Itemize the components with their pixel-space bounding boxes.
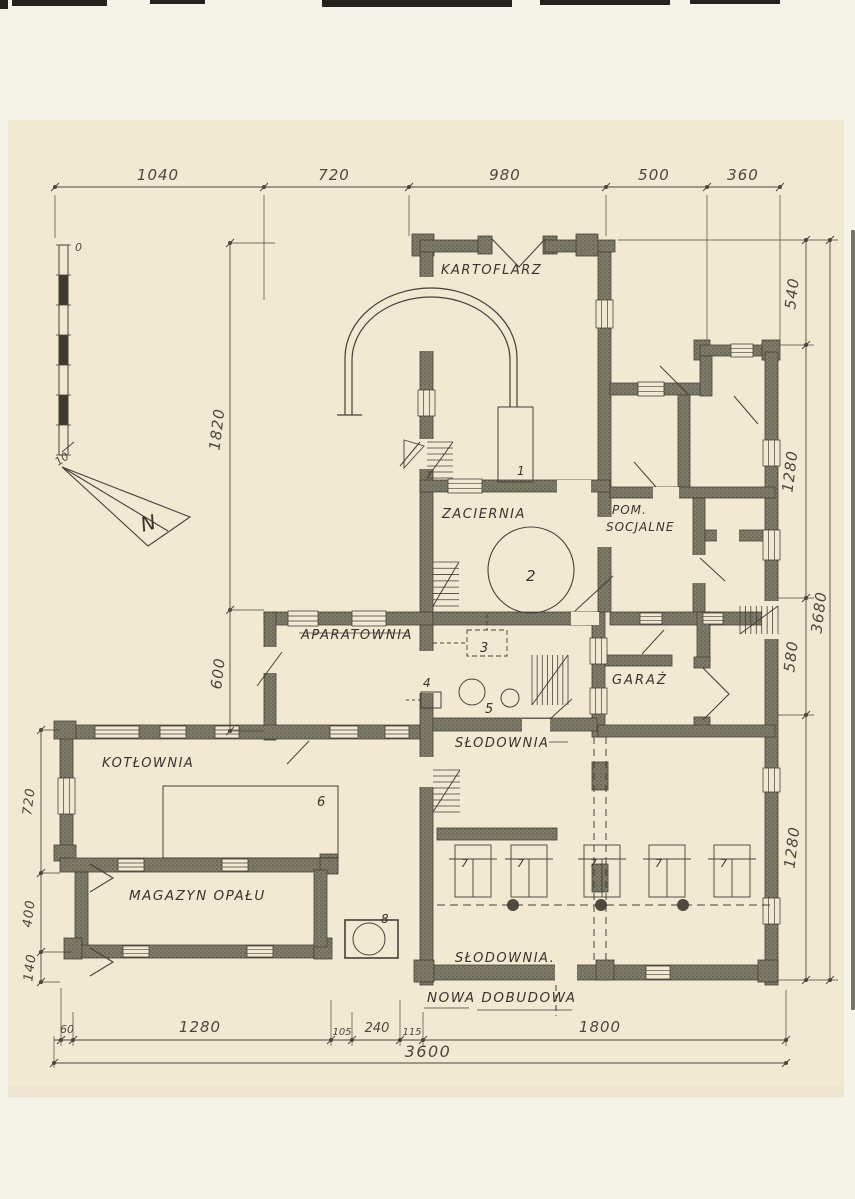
label-rooms-garaz: GARAŻ [612,672,668,688]
label-items-rack: 7 [655,857,662,870]
label-dims-top-2: 980 [489,166,521,184]
label-items-i1: 1 [517,464,525,478]
label-dims-bottom-2: 105 [332,1027,351,1038]
label-dims-right-2: 580 [780,640,802,674]
label-items-i4: 4 [423,676,431,690]
label-dims-bottom-0: 60 [60,1023,74,1036]
scanned-floor-plan: KARTOFLARZZACIERNIAPOM.SOCJALNEAPARATOWN… [0,0,855,1199]
floorplan-drawing: KARTOFLARZZACIERNIAPOM.SOCJALNEAPARATOWN… [0,0,855,1199]
label-items-i8: 8 [381,912,389,926]
label-dims-top-1: 720 [318,166,350,184]
label-items-i2: 2 [526,567,536,585]
label-scalebar-zero: 0 [75,241,82,254]
label-rooms-pom1: POM. [612,503,647,517]
label-dims-bottom-5: 1800 [579,1018,621,1036]
label-rooms-zaciernia: ZACIERNIA [441,507,526,522]
label-items-rack: 7 [517,857,524,870]
label-dims-right-0: 540 [781,277,803,311]
label-rooms-kotlownia: KOTŁOWNIA [102,756,194,771]
label-rooms-slodownia: SŁODOWNIA [455,736,549,751]
label-dims-bottom_total: 3600 [405,1042,452,1061]
label-rooms-aparatownia: APARATOWNIA [300,628,413,643]
label-dims-bottom-1: 1280 [179,1018,221,1036]
label-dims-bottom-4: 115 [402,1027,421,1038]
label-dims-left-1: 600 [207,657,229,691]
label-dims-top-3: 500 [638,166,670,184]
label-rooms-slodownia2: SŁODOWNIA. [455,951,555,966]
label-items-i3: 3 [480,641,488,656]
label-items-i5: 5 [485,702,493,717]
label-items-i6: 6 [317,795,325,810]
label-dims-top-4: 360 [727,166,759,184]
label-rooms-pom2: SOCJALNE [606,520,674,534]
label-rooms-kartoflarz: KARTOFLARZ [441,263,542,278]
label-items-rack: 7 [720,857,727,870]
label-rooms-magazyn: MAGAZYN OPAŁU [129,888,266,904]
label-items-rack: 7 [590,857,597,870]
label-dims-top-0: 1040 [137,166,179,184]
label-dims-bottom-3: 240 [365,1021,390,1036]
label-items-rack: 7 [461,857,468,870]
label-rooms-nowa: NOWA DOBUDOWA [427,990,577,1006]
